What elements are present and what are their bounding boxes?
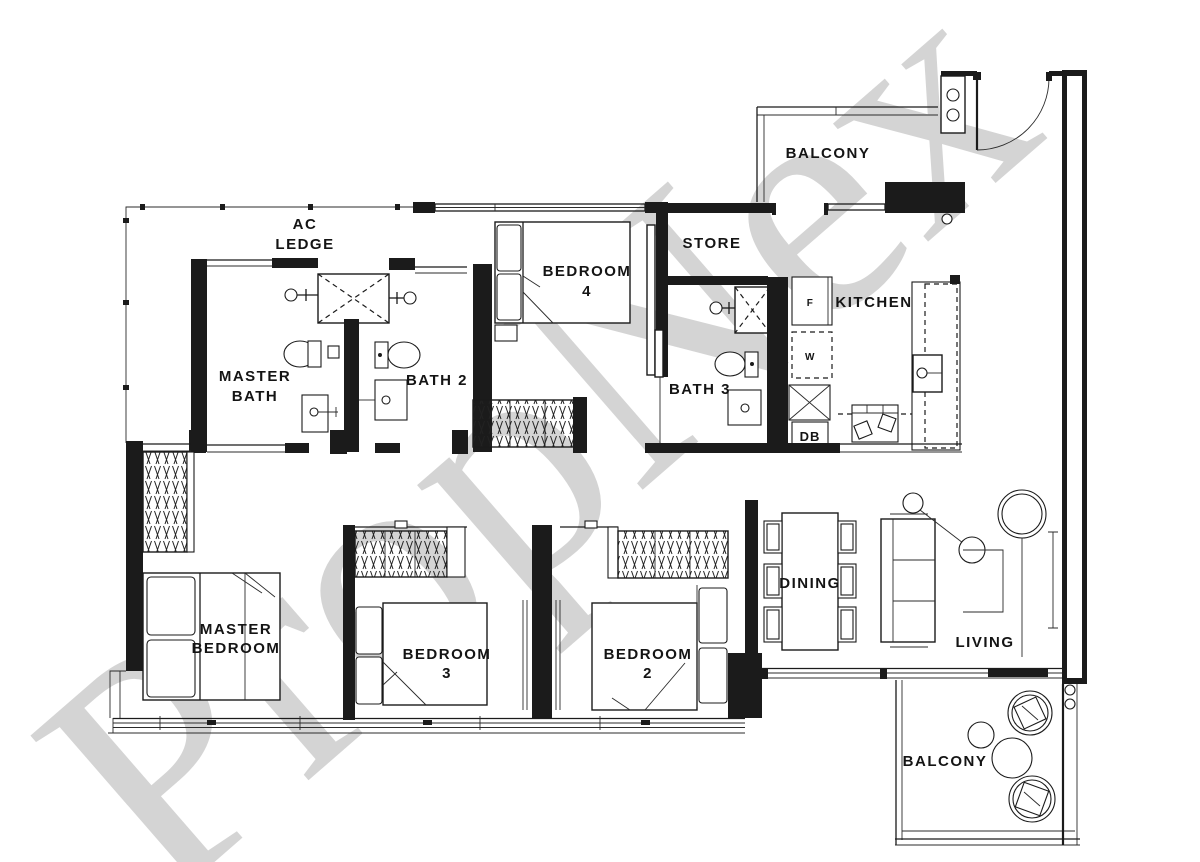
bath3-label: BATH 3: [669, 381, 731, 398]
round-table-icon: [992, 738, 1032, 778]
room-dining: DINING: [764, 513, 856, 650]
floor-plan-page: PropNex AC LEDGE: [0, 0, 1200, 862]
ac-ledge-label-2: LEDGE: [275, 236, 334, 253]
fridge-icon: F: [792, 277, 832, 325]
round-chair-icon: [1008, 691, 1052, 735]
master-bath-label-1: MASTER: [219, 368, 291, 385]
bedroom2-label-1: BEDROOM: [604, 646, 693, 663]
room-living: LIVING: [881, 490, 1058, 657]
sofa-icon: [881, 514, 935, 647]
cabinet-icon: [789, 385, 830, 420]
store-label: STORE: [683, 235, 742, 252]
bath3-door-leaf: [655, 330, 663, 377]
bedroom4-label-1: BEDROOM: [543, 263, 632, 280]
master-bedroom-label-2: BEDROOM: [192, 640, 281, 657]
living-label: LIVING: [955, 634, 1014, 651]
planter-wall: [885, 182, 965, 213]
bath2-label: BATH 2: [406, 372, 468, 389]
shower-icon: [318, 274, 389, 323]
sink-icon: [728, 390, 761, 425]
db-label: DB: [800, 429, 821, 444]
shower-icon: [735, 287, 770, 333]
living-sliding-door: [762, 668, 1062, 679]
master-bath-label-2: BATH: [232, 388, 279, 405]
round-chair-icon: [1009, 776, 1055, 822]
kitchen-sink-icon: [913, 355, 942, 392]
room-balcony-bottom: BALCONY: [895, 680, 1080, 845]
toilet-icon: [375, 342, 420, 368]
master-bedroom-label-1: MASTER: [200, 621, 272, 638]
floor-plan-canvas: PropNex AC LEDGE: [0, 0, 1200, 862]
washer-label: W: [805, 352, 815, 363]
fridge-label: F: [807, 298, 814, 309]
toilet-icon: [284, 341, 339, 367]
shower-tap-icon: [389, 292, 416, 304]
sliding-panel: [988, 669, 1048, 677]
east-wall: [1062, 70, 1087, 684]
shower-tap-icon: [285, 289, 318, 301]
arc-lamp-icon: [998, 490, 1046, 657]
ac-ledge-label-1: AC: [293, 216, 318, 233]
bedroom3-label-2: 3: [442, 665, 452, 682]
bedroom4-door-leaf: [647, 225, 655, 375]
wardrobe-icon: [473, 397, 587, 453]
bedroom4-label-2: 4: [582, 283, 592, 300]
bedroom2-label-2: 2: [643, 665, 653, 682]
wardrobe-icon: [143, 452, 194, 552]
bedroom3-label-1: BEDROOM: [403, 646, 492, 663]
dining-label: DINING: [779, 575, 841, 592]
balcony-top-label: BALCONY: [786, 145, 871, 162]
nightstand-icon: [495, 325, 517, 341]
toilet-icon: [715, 352, 758, 377]
balcony-bottom-label: BALCONY: [903, 753, 988, 770]
round-table-icon: [968, 722, 994, 748]
kitchen-label: KITCHEN: [835, 294, 912, 311]
curtain-line: [1048, 532, 1058, 628]
wardrobe-icon: [355, 527, 465, 577]
hob-icon: [852, 405, 898, 442]
wardrobe-icon: [608, 527, 728, 578]
riser-duct: [941, 76, 965, 133]
